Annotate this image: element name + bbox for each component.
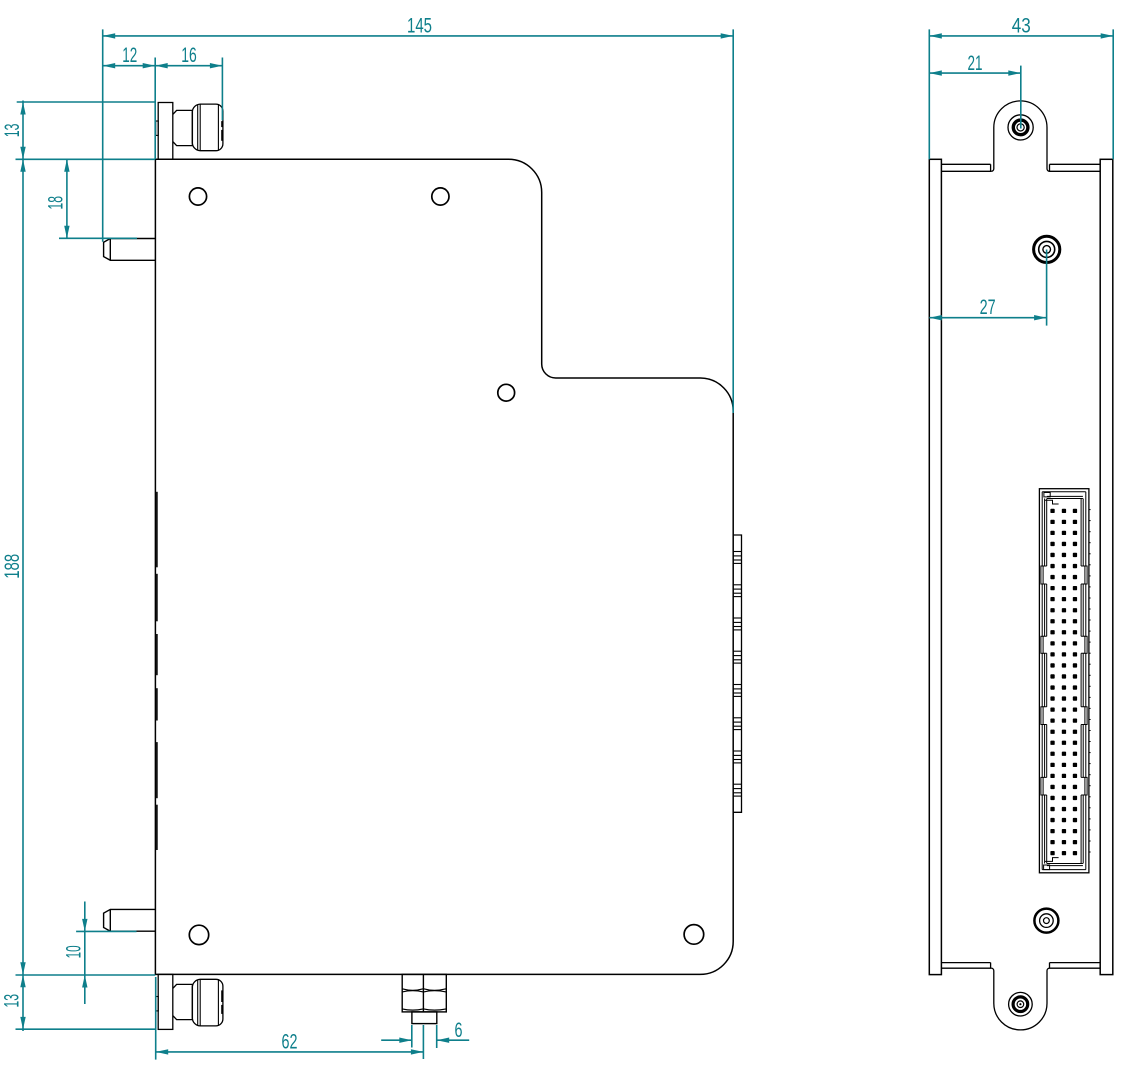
svg-text:188: 188 [0, 554, 24, 579]
svg-text:21: 21 [968, 50, 983, 75]
svg-text:13: 13 [0, 994, 24, 1008]
svg-text:10: 10 [60, 945, 85, 958]
svg-text:13: 13 [0, 124, 24, 138]
svg-text:43: 43 [1012, 13, 1031, 38]
svg-text:16: 16 [181, 42, 197, 67]
svg-text:12: 12 [122, 42, 137, 67]
svg-text:145: 145 [407, 12, 432, 37]
svg-text:18: 18 [43, 196, 68, 210]
svg-text:62: 62 [282, 1028, 298, 1053]
svg-text:27: 27 [980, 294, 996, 319]
svg-text:6: 6 [455, 1017, 463, 1042]
